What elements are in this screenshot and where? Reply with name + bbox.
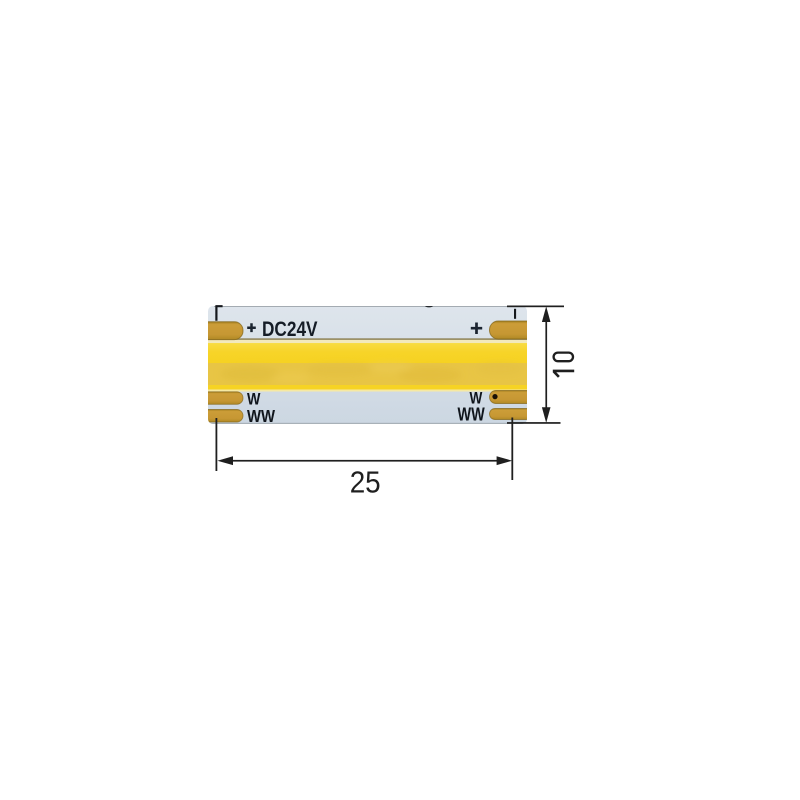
svg-text:WW: WW [458,405,485,425]
svg-text:WW: WW [247,406,276,426]
svg-text:25: 25 [350,465,381,499]
svg-text:DC24V: DC24V [262,318,318,341]
